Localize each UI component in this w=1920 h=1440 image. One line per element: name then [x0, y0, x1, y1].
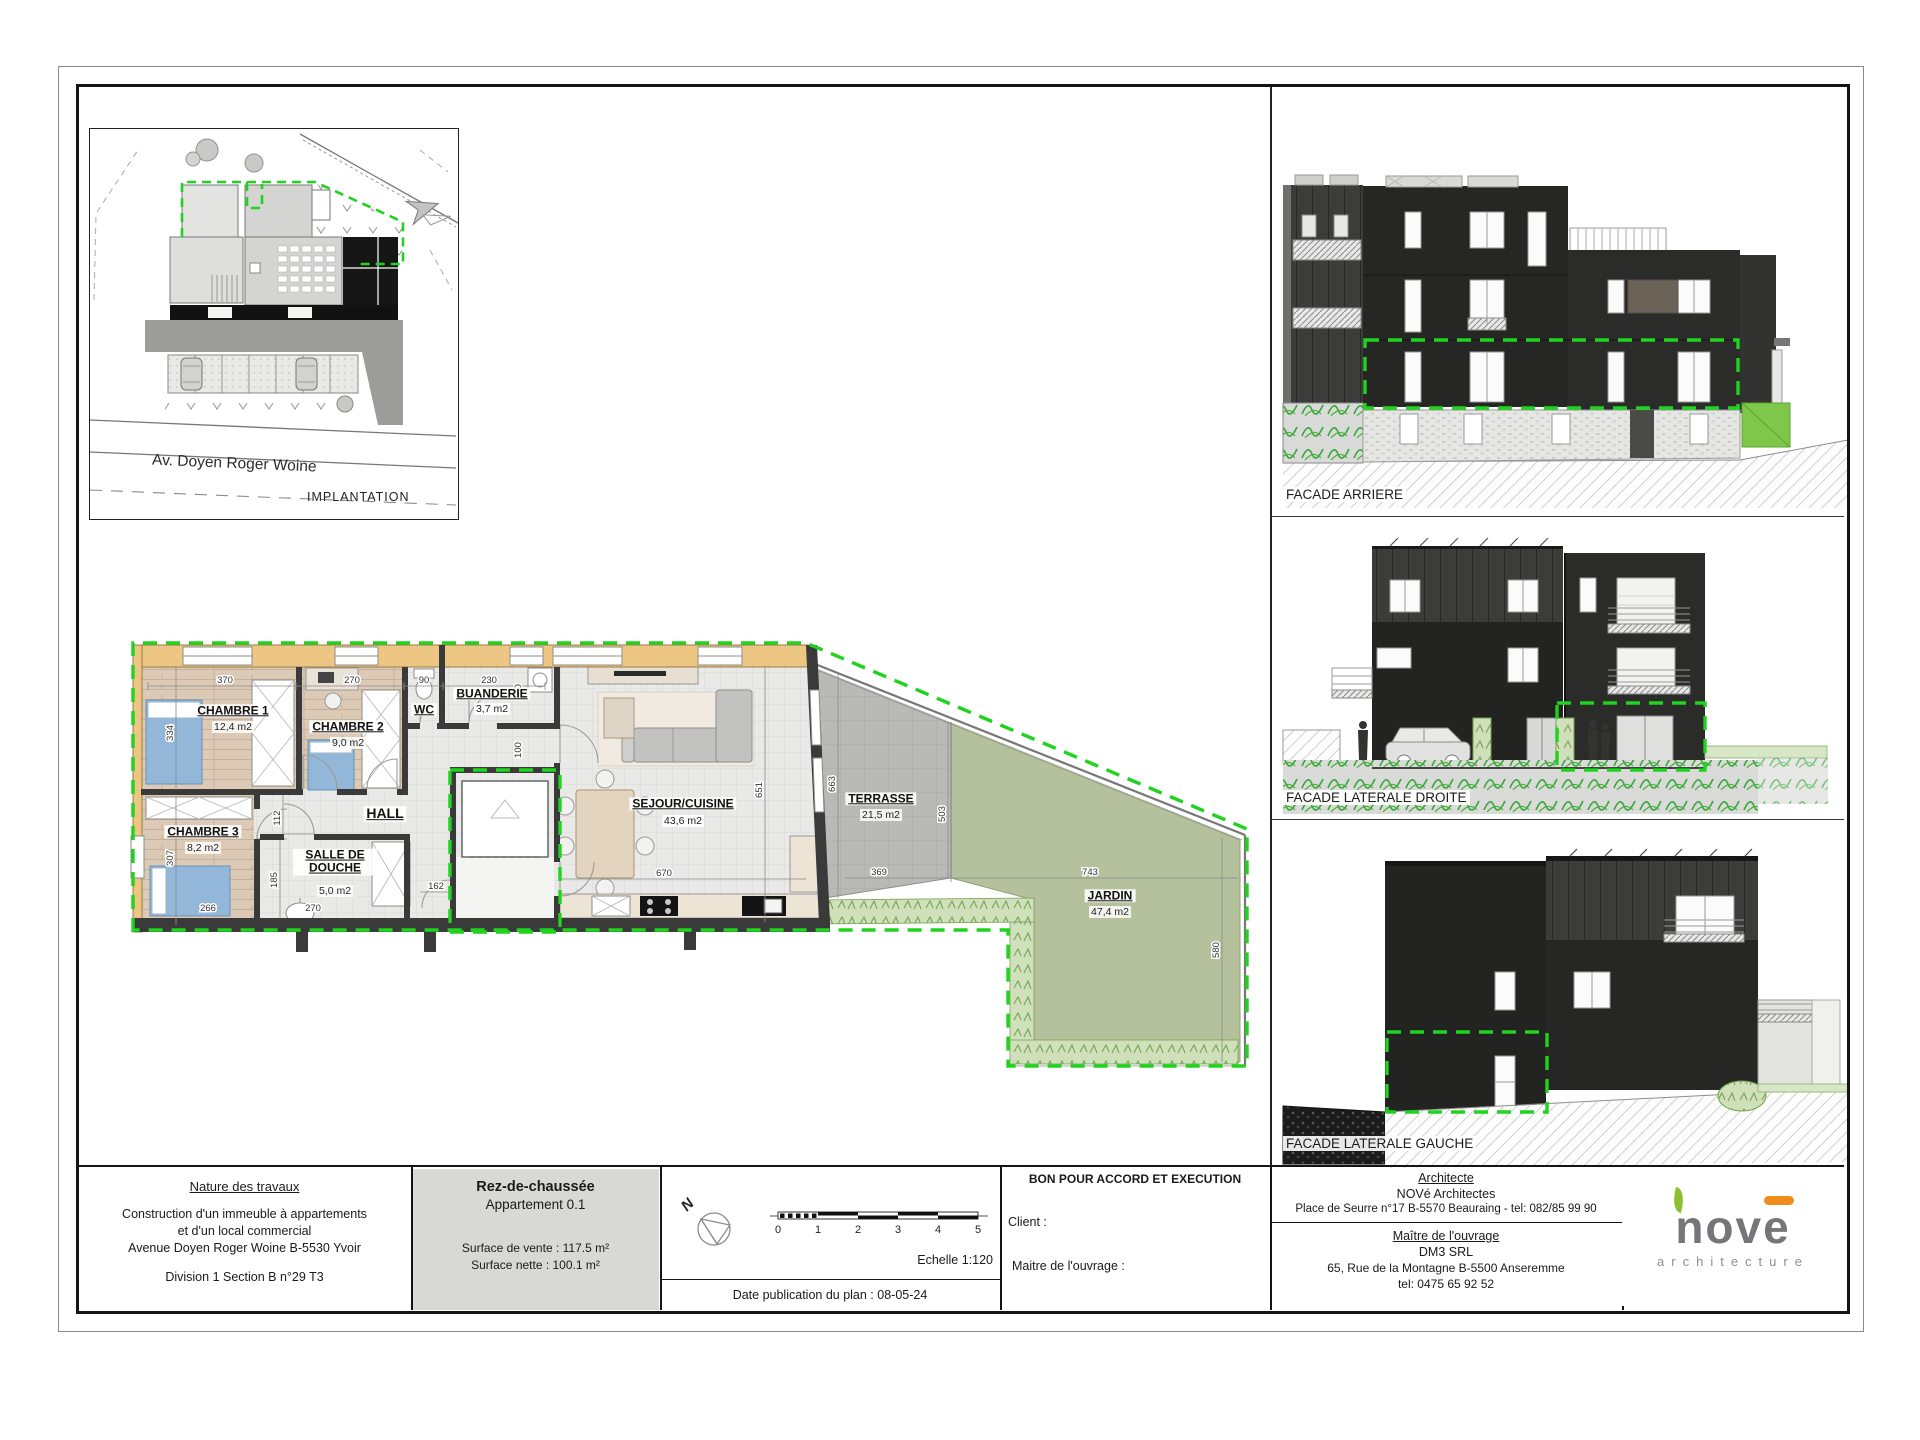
room-label-buanderie: BUANDERIE [453, 687, 530, 700]
tb-subdivider-date [660, 1279, 1000, 1280]
room-area-salle-de-douche: 5,0 m2 [317, 885, 353, 897]
room-label-jardin: JARDIN [1085, 889, 1136, 902]
nature-line4: Division 1 Section B n°29 T3 [78, 1270, 411, 1284]
room-area-sejour: 43,6 m2 [662, 815, 704, 827]
room-label-chambre3: CHAMBRE 3 [164, 825, 241, 838]
title-block: Nature des travaux Construction d'un imm… [78, 1165, 1844, 1310]
nature-line1: Construction d'un immeuble à appartement… [78, 1207, 411, 1221]
nature-line2: et d'un local commercial [78, 1224, 411, 1238]
architect-address: Place de Seurre n°17 B-5570 Beauraing - … [1270, 1203, 1622, 1215]
room-area-terrasse: 21,5 m2 [860, 809, 902, 821]
room-label-chambre2: CHAMBRE 2 [309, 720, 386, 733]
owner-address: 65, Rue de la Montagne B-5500 Anseremme [1270, 1261, 1622, 1275]
architect-name: NOVé Architectes [1270, 1187, 1622, 1201]
room-area-jardin: 47,4 m2 [1089, 906, 1131, 918]
room-label-wc: WC [411, 703, 437, 716]
architect-title: Architecte [1270, 1171, 1622, 1185]
room-area-buanderie: 3,7 m2 [474, 703, 510, 715]
room-label-salle-de-douche: SALLE DE DOUCHE [293, 849, 377, 876]
client-label: Client : [1008, 1215, 1047, 1229]
room-area-chambre2: 9,0 m2 [330, 737, 366, 749]
facade-gauche-label: FACADE LATERALE GAUCHE [1283, 1136, 1476, 1151]
facade-droite-label: FACADE LATERALE DROITE [1283, 790, 1470, 805]
implantation-caption: IMPLANTATION [307, 490, 410, 504]
echelle-label: Echelle 1:120 [818, 1253, 993, 1267]
facade-arriere-label: FACADE ARRIERE [1283, 487, 1406, 502]
level-sub: Appartement 0.1 [412, 1197, 659, 1212]
facades-panel-divider [1270, 87, 1272, 1165]
architecture-logo: nove architecture [1622, 1167, 1844, 1306]
approval-line: BON POUR ACCORD ET EXECUTION [1000, 1172, 1270, 1186]
room-label-sejour: SEJOUR/CUISINE [629, 797, 736, 810]
room-area-chambre1: 12,4 m2 [212, 721, 254, 733]
owner-name: DM3 SRL [1270, 1245, 1622, 1259]
surface-vente: Surface de vente : 117.5 m² [412, 1241, 659, 1255]
owner-title: Maître de l'ouvrage [1270, 1229, 1622, 1243]
level-title: Rez-de-chaussée [412, 1179, 659, 1195]
owner-tel: tel: 0475 65 92 52 [1270, 1277, 1622, 1291]
room-label-terrasse: TERRASSE [845, 792, 916, 805]
tb-subdivider-arch [1270, 1222, 1622, 1223]
nature-line3: Avenue Doyen Roger Woine B-5530 Yvoir [78, 1241, 411, 1255]
room-area-chambre3: 8,2 m2 [185, 842, 221, 854]
logo-wordmark: nove [1675, 1204, 1790, 1250]
surface-nette: Surface nette : 100.1 m² [412, 1258, 659, 1272]
maitre-label: Maitre de l'ouvrage : [1012, 1259, 1125, 1273]
tb-divider [1000, 1167, 1002, 1310]
facade-section-divider [1270, 516, 1844, 517]
logo-macron-icon [1764, 1196, 1794, 1205]
logo-subtitle: architecture [1657, 1254, 1809, 1269]
facade-section-divider [1270, 819, 1844, 820]
nature-title: Nature des travaux [78, 1179, 411, 1194]
room-label-hall: HALL [363, 806, 406, 822]
date-line: Date publication du plan : 08-05-24 [660, 1288, 1000, 1302]
room-label-chambre1: CHAMBRE 1 [194, 704, 271, 717]
drawing-sheet: 370 270 90 230 334 160 100 307 266 112 1… [0, 0, 1920, 1440]
